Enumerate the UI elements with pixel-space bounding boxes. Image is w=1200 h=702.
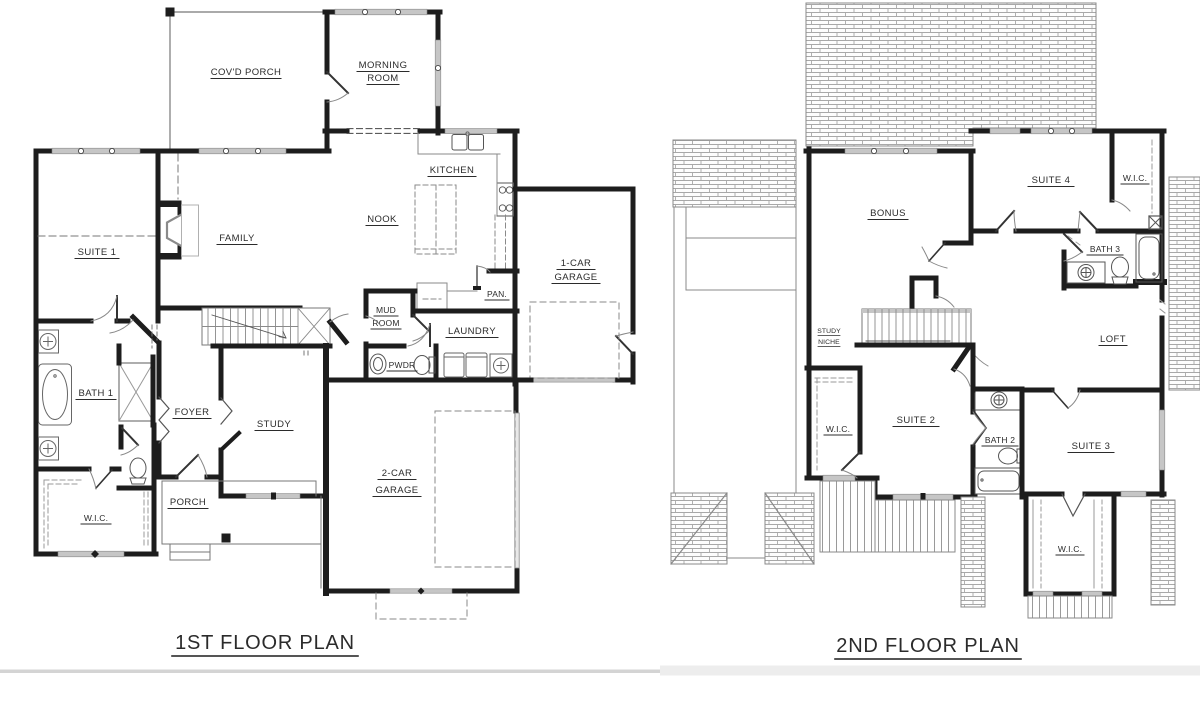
svg-text:BATH 3: BATH 3 — [1090, 244, 1120, 254]
svg-text:PAN.: PAN. — [487, 289, 507, 299]
svg-text:W.I.C.: W.I.C. — [84, 513, 108, 523]
svg-text:MUD: MUD — [376, 305, 396, 315]
svg-text:STUDY: STUDY — [817, 328, 841, 335]
svg-text:GARAGE: GARAGE — [375, 485, 418, 496]
svg-text:ROOM: ROOM — [367, 73, 398, 84]
svg-text:SUITE 3: SUITE 3 — [1072, 441, 1111, 452]
svg-text:NOOK: NOOK — [367, 214, 397, 225]
svg-text:NICHE: NICHE — [818, 339, 840, 346]
svg-text:W.I.C.: W.I.C. — [1058, 544, 1082, 554]
svg-text:W.I.C.: W.I.C. — [826, 424, 850, 434]
svg-text:FAMILY: FAMILY — [219, 233, 255, 244]
svg-text:LOFT: LOFT — [1100, 334, 1126, 345]
svg-text:PWDR: PWDR — [389, 360, 416, 370]
svg-text:1ST FLOOR PLAN: 1ST FLOOR PLAN — [175, 632, 355, 654]
svg-text:BATH 2: BATH 2 — [985, 435, 1015, 445]
svg-text:2ND FLOOR PLAN: 2ND FLOOR PLAN — [836, 635, 1019, 657]
svg-text:1-CAR: 1-CAR — [561, 258, 592, 269]
svg-text:BATH 1: BATH 1 — [79, 388, 114, 399]
svg-text:STUDY: STUDY — [257, 419, 291, 430]
svg-text:COV'D PORCH: COV'D PORCH — [211, 67, 282, 78]
svg-text:PORCH: PORCH — [170, 497, 206, 508]
svg-text:W.I.C.: W.I.C. — [1123, 173, 1147, 183]
svg-text:SUITE 2: SUITE 2 — [897, 415, 936, 426]
svg-text:2-CAR: 2-CAR — [382, 468, 413, 479]
svg-text:ROOM: ROOM — [372, 318, 399, 328]
svg-text:MORNING: MORNING — [359, 60, 408, 71]
svg-text:LAUNDRY: LAUNDRY — [448, 326, 496, 337]
svg-text:BONUS: BONUS — [870, 208, 906, 219]
svg-text:FOYER: FOYER — [175, 407, 210, 418]
svg-text:SUITE 1: SUITE 1 — [78, 247, 117, 258]
svg-text:KITCHEN: KITCHEN — [430, 165, 475, 176]
svg-text:GARAGE: GARAGE — [554, 272, 597, 283]
svg-text:SUITE 4: SUITE 4 — [1032, 175, 1071, 186]
